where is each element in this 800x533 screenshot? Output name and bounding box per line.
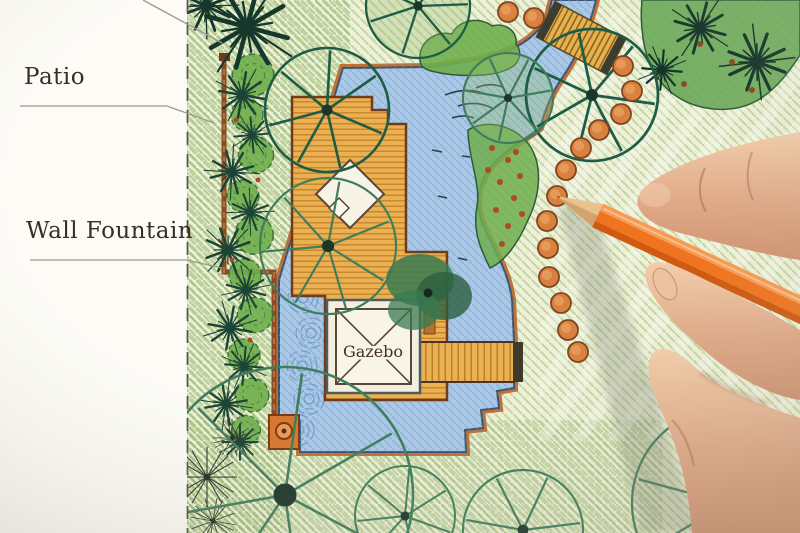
- landscape-plan-photo: Gazebo: [0, 0, 800, 533]
- photo-of-landscape-plan: Gazebo: [0, 0, 800, 533]
- photo-vignette: [0, 0, 800, 533]
